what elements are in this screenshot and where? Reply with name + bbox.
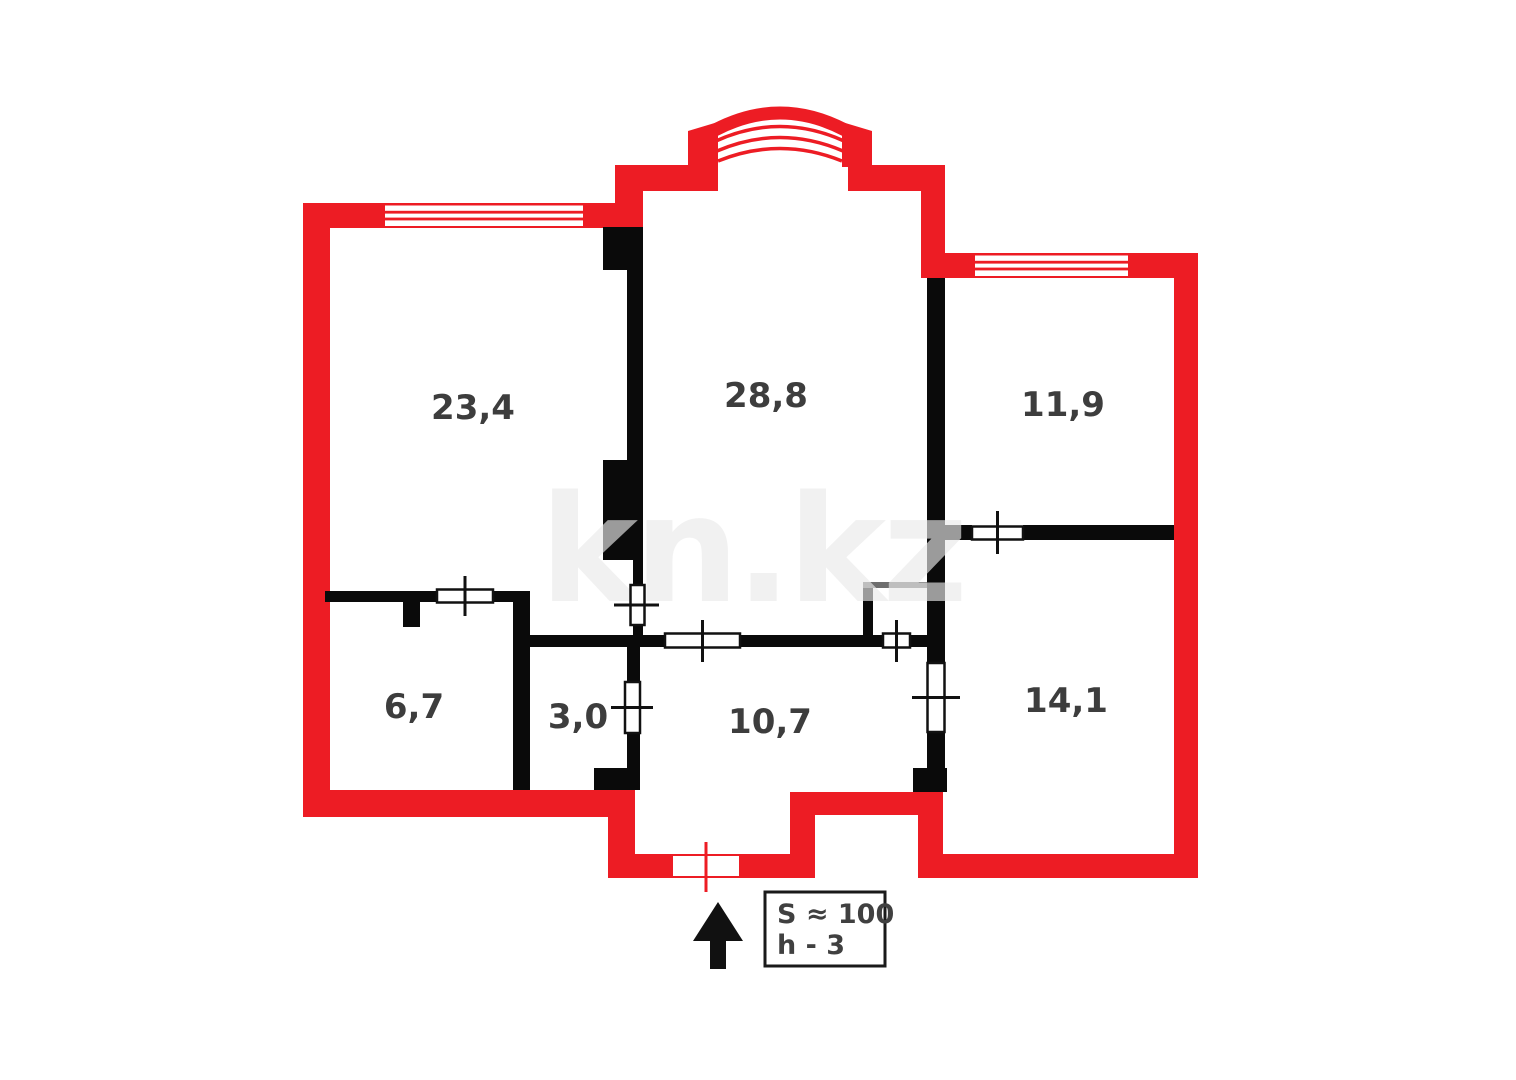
info-box-area: S ≈ 100	[777, 899, 894, 930]
room-area-label: 28,8	[724, 376, 808, 416]
door-bedroom-right	[912, 663, 960, 732]
bay-arch-window-icon	[715, 113, 845, 161]
door-bathroom	[611, 682, 653, 733]
room-area-label: 6,7	[384, 687, 444, 727]
floor-plan-page: kn.kz	[0, 0, 1516, 1080]
room-area-label: 11,9	[1021, 385, 1105, 425]
watermark: kn.kz	[540, 464, 965, 636]
window-icon-left	[385, 206, 583, 227]
door-kitchen	[437, 576, 493, 616]
entrance-door	[672, 842, 740, 892]
room-area-label: 14,1	[1024, 681, 1108, 721]
room-area-label: 10,7	[728, 702, 812, 742]
entrance-arrow-icon	[693, 902, 743, 969]
room-area-label: 23,4	[431, 388, 515, 428]
window-icon-right	[975, 256, 1128, 277]
floor-plan-drawing: kn.kz	[0, 0, 1516, 1080]
info-box-height: h - 3	[777, 930, 845, 961]
room-area-label: 3,0	[548, 697, 608, 737]
info-box: S ≈ 100 h - 3	[765, 892, 894, 966]
door-bedroom-top	[972, 511, 1023, 554]
